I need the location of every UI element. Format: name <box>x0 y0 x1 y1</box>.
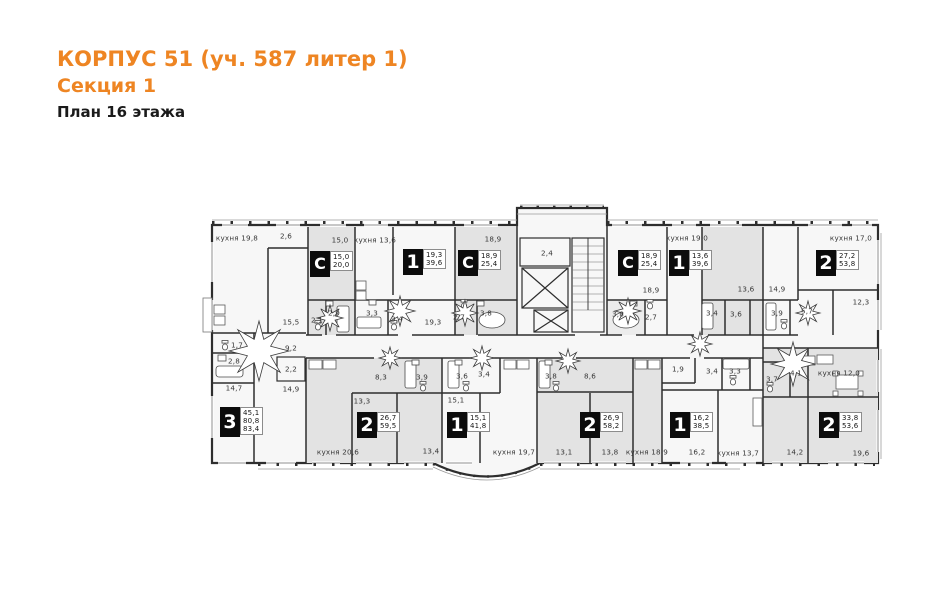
room-label: 8,3 <box>375 373 387 382</box>
door-swing-icon <box>470 346 494 370</box>
room-label: 14,2 <box>787 448 804 457</box>
apartment-areas: 15,141,8 <box>467 412 490 432</box>
room-label: 2,8 <box>228 357 240 366</box>
room-label: 13,8 <box>602 448 619 457</box>
bathtub-icon <box>357 317 381 328</box>
room-label: 8,6 <box>584 372 596 381</box>
room-label: 13,1 <box>556 448 573 457</box>
apartment-badge[interactable]: 113,639,6 <box>669 250 712 276</box>
room-label: кухня 20,6 <box>317 448 359 457</box>
room-label: 1,7 <box>231 341 243 350</box>
apartment-areas: 15,020,0 <box>330 251 353 271</box>
room-label: 16,2 <box>689 448 706 457</box>
room-label: 3,3 <box>729 367 741 376</box>
room-label: кухня 17,0 <box>830 234 872 243</box>
room-label: 3,4 <box>478 370 490 379</box>
apartment-type: С <box>458 250 478 276</box>
room-label: 3,8 <box>612 310 624 319</box>
room-label: 3,3 <box>366 309 378 318</box>
apartment-areas: 18,925,4 <box>638 250 661 270</box>
room-label: 2,2 <box>285 365 297 374</box>
room-label: 2,6 <box>280 232 292 241</box>
room-label: 3,9 <box>771 309 783 318</box>
apartment-type: С <box>618 250 638 276</box>
apartment-type: 1 <box>447 412 467 438</box>
room-label: 14,7 <box>226 384 243 393</box>
room-label: 18,9 <box>485 235 502 244</box>
apartment-type: С <box>310 251 330 277</box>
room-label: 19,6 <box>853 449 870 458</box>
room-label: 3,8 <box>480 309 492 318</box>
room-label: 3,6 <box>730 310 742 319</box>
room-label: 2,4 <box>541 249 553 258</box>
apartment-badge[interactable]: 345,180,883,4 <box>220 407 263 437</box>
apartment-areas: 19,339,6 <box>423 249 446 269</box>
apartment-type: 2 <box>819 412 839 438</box>
room-label: кухня 13,7 <box>717 449 759 458</box>
apartment-areas: 26,958,2 <box>600 412 623 432</box>
floor-plan-drawing <box>0 0 941 600</box>
room-label: 2,7 <box>453 313 465 322</box>
room-label: кухня 19,0 <box>666 234 708 243</box>
apartment-badge[interactable]: 233,853,6 <box>819 412 862 438</box>
room-label: 3,4 <box>706 367 718 376</box>
room-label: 1,9 <box>672 365 684 374</box>
room-label: 3,6 <box>456 372 468 381</box>
room-label: 13,4 <box>423 447 440 456</box>
room-label: кухня 19,8 <box>216 234 258 243</box>
apartment-badge[interactable]: 115,141,8 <box>447 412 490 438</box>
apartment-badge[interactable]: С18,925,4 <box>618 250 661 276</box>
apartment-badge[interactable]: С15,020,0 <box>310 251 353 277</box>
room-label: 15,1 <box>448 396 465 405</box>
door-swing-icon <box>556 349 580 373</box>
apartment-areas: 26,759,5 <box>377 412 400 432</box>
room-label: 14,9 <box>769 285 786 294</box>
room-label: 13,3 <box>354 397 371 406</box>
room-label: 2,7 <box>645 313 657 322</box>
room-label: 3,9 <box>416 373 428 382</box>
apartment-type: 2 <box>580 412 600 438</box>
apartment-badge[interactable]: 116,238,5 <box>670 412 713 438</box>
room-label: 3,7 <box>766 375 778 384</box>
apartment-areas: 45,180,883,4 <box>240 407 263 435</box>
room-label: 15,5 <box>283 318 300 327</box>
room-label: кухня 12,0 <box>818 369 860 378</box>
apartment-type: 2 <box>357 412 377 438</box>
room-label: 2,9 <box>328 309 340 318</box>
apartment-areas: 18,925,4 <box>478 250 501 270</box>
room-label: 12,3 <box>853 298 870 307</box>
room-label: кухня 18,9 <box>626 448 668 457</box>
room-label: 4,1 <box>790 369 802 378</box>
room-label: 5,7 <box>801 307 813 316</box>
room-label: 18,9 <box>643 286 660 295</box>
room-label: кухня 19,7 <box>493 448 535 457</box>
room-label: 3,4 <box>391 315 403 324</box>
apartment-badge[interactable]: 227,253,8 <box>816 250 859 276</box>
room-label: 9,2 <box>285 344 297 353</box>
apartment-type: 1 <box>670 412 690 438</box>
apartment-type: 1 <box>403 249 423 275</box>
apartment-areas: 33,853,6 <box>839 412 862 432</box>
door-swing-icon <box>229 321 289 381</box>
room-label: 3,8 <box>545 372 557 381</box>
apartment-type: 2 <box>816 250 836 276</box>
room-label: 15,0 <box>332 236 349 245</box>
apartment-badge[interactable]: 226,958,2 <box>580 412 623 438</box>
room-label: 3,4 <box>706 309 718 318</box>
apartment-badge[interactable]: С18,925,4 <box>458 250 501 276</box>
floor-plan: кухня 19,82,615,0кухня 13,618,92,418,9ку… <box>0 0 941 600</box>
apartment-areas: 16,238,5 <box>690 412 713 432</box>
room-label: кухня 13,6 <box>354 236 396 245</box>
apartment-type: 1 <box>669 250 689 276</box>
door-swing-icon <box>688 332 712 356</box>
apartment-areas: 27,253,8 <box>836 250 859 270</box>
door-swing-icon <box>379 347 401 369</box>
room-label: 2,1 <box>311 316 323 325</box>
apartment-badge[interactable]: 226,759,5 <box>357 412 400 438</box>
room-label: 13,6 <box>738 285 755 294</box>
apartment-badge[interactable]: 119,339,6 <box>403 249 446 275</box>
apartment-areas: 13,639,6 <box>689 250 712 270</box>
apartment-type: 3 <box>220 407 240 437</box>
room-label: 14,9 <box>283 385 300 394</box>
room-label: 19,3 <box>425 318 442 327</box>
